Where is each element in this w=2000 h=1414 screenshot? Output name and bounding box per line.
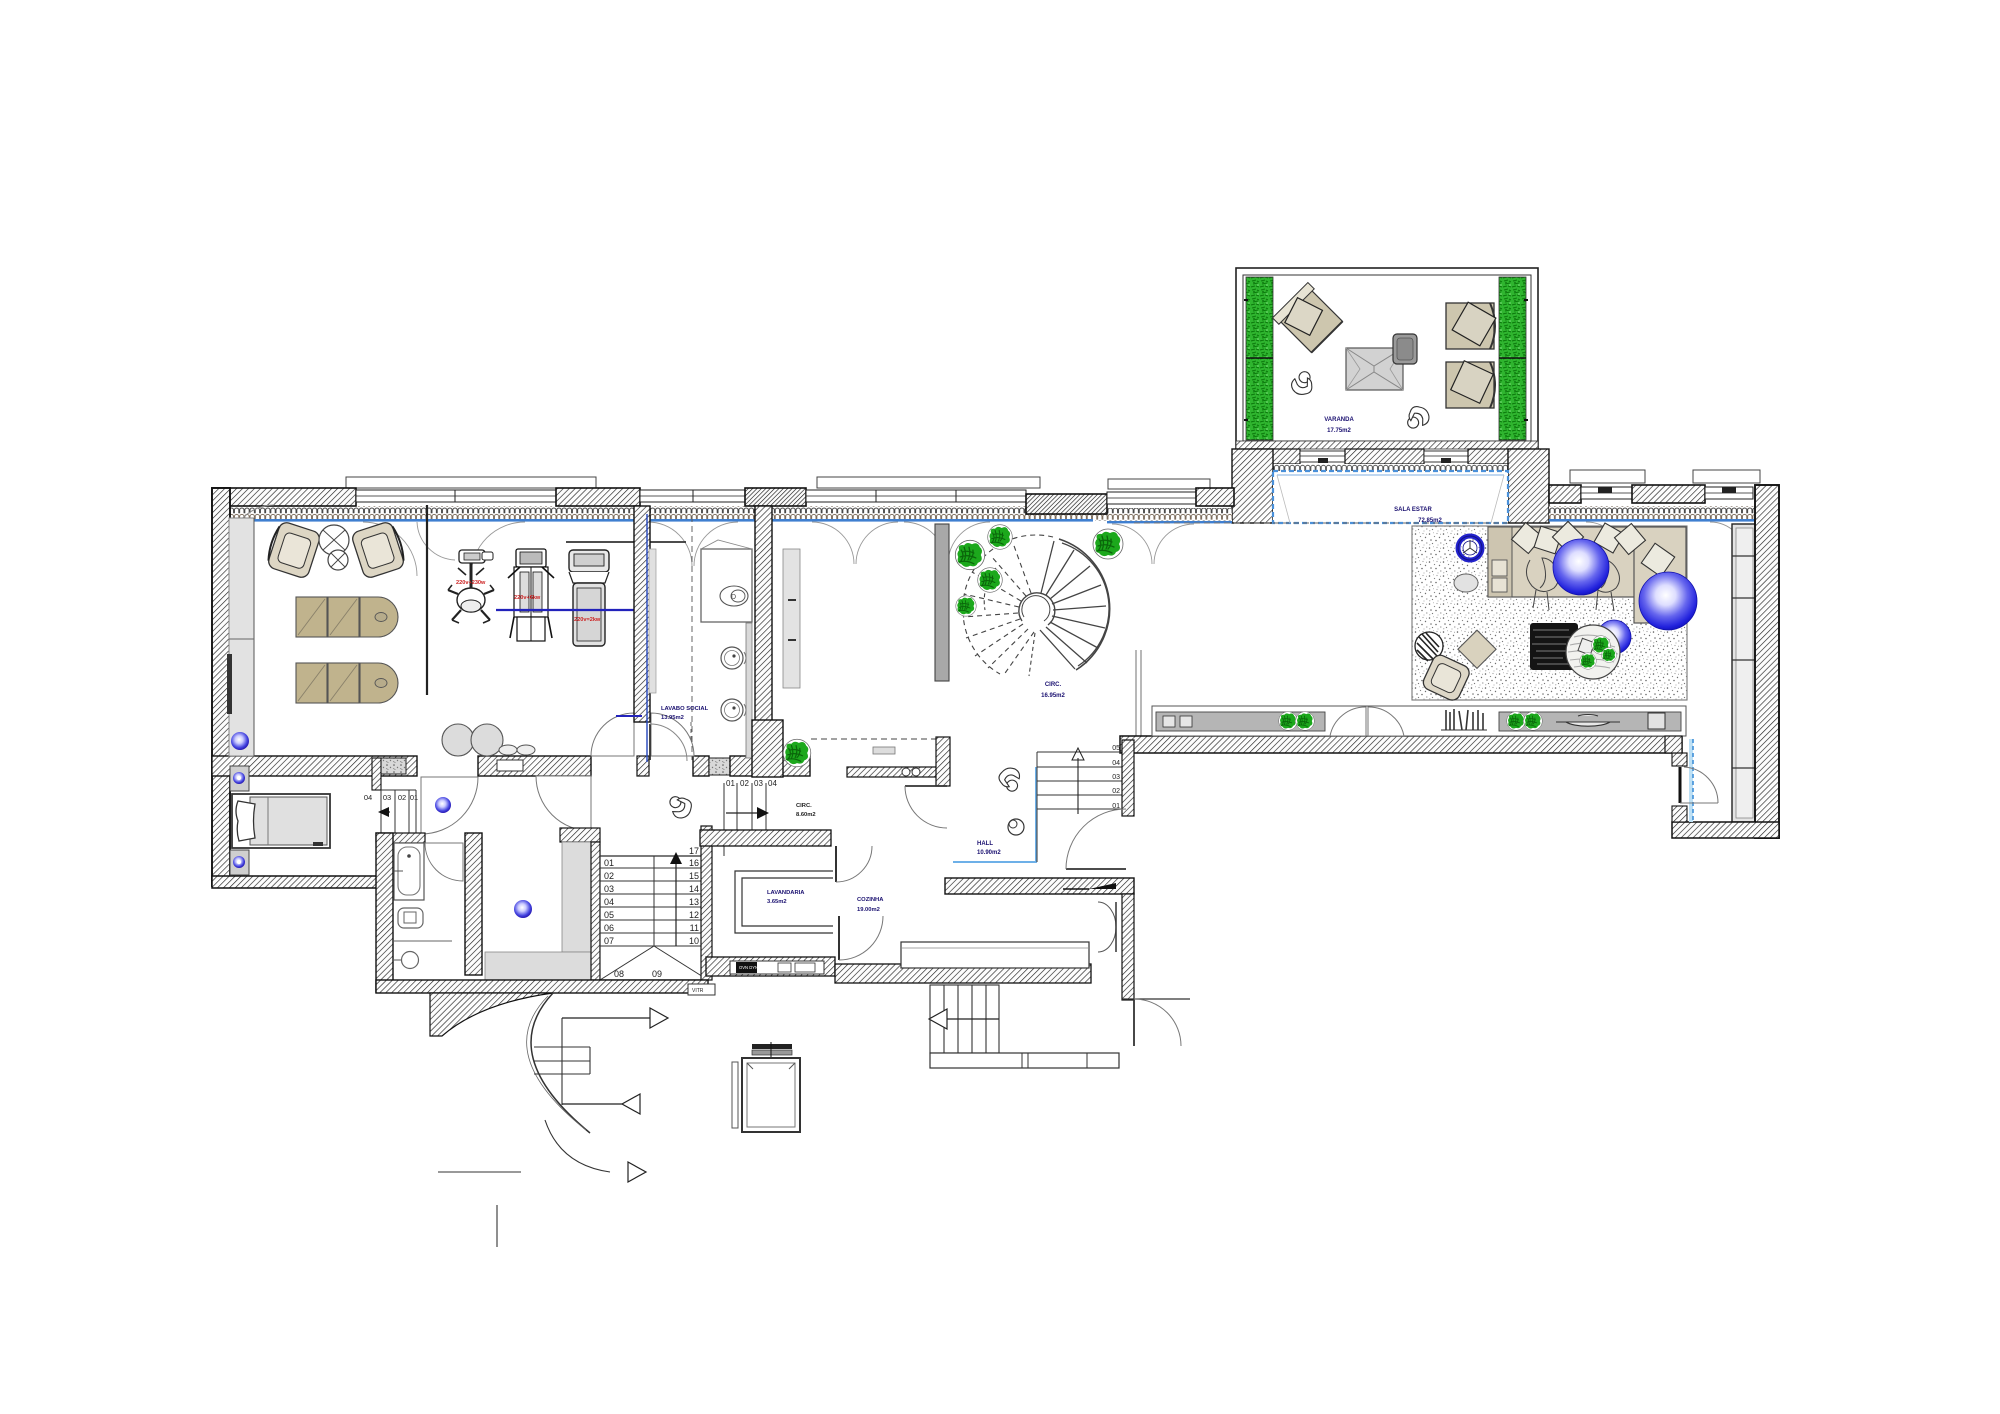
svg-text:04: 04: [1112, 760, 1120, 767]
svg-text:02: 02: [1112, 788, 1120, 795]
svg-text:16: 16: [689, 858, 699, 868]
svg-text:03: 03: [383, 793, 391, 802]
svg-text:VITR: VITR: [692, 988, 704, 994]
svg-text:01: 01: [726, 779, 735, 788]
svg-text:220v=2kw: 220v=2kw: [574, 617, 601, 623]
svg-text:13: 13: [689, 897, 699, 907]
svg-text:10: 10: [689, 936, 699, 946]
svg-text:3.65m2: 3.65m2: [767, 899, 787, 905]
svg-text:220v+230w: 220v+230w: [456, 580, 486, 586]
svg-text:OVN DYN: OVN DYN: [739, 965, 758, 970]
svg-text:220v+6kw: 220v+6kw: [514, 595, 541, 601]
svg-text:12: 12: [689, 910, 699, 920]
svg-text:11: 11: [690, 923, 699, 933]
svg-text:17.75m2: 17.75m2: [1327, 428, 1351, 434]
svg-text:COZINHA: COZINHA: [857, 897, 884, 903]
svg-text:HALL: HALL: [977, 841, 993, 847]
svg-text:08: 08: [614, 969, 624, 979]
svg-text:LAVANDARIA: LAVANDARIA: [767, 890, 805, 896]
svg-text:04: 04: [364, 793, 372, 802]
svg-text:04: 04: [604, 897, 614, 907]
svg-text:72.85m2: 72.85m2: [1418, 518, 1442, 524]
svg-text:17: 17: [689, 846, 699, 856]
svg-text:05: 05: [1112, 745, 1120, 752]
svg-text:15: 15: [689, 871, 699, 881]
svg-text:CIRC.: CIRC.: [1045, 682, 1062, 688]
svg-text:CIRC.: CIRC.: [796, 803, 812, 809]
svg-text:LAVABO SOCIAL: LAVABO SOCIAL: [661, 706, 709, 712]
svg-text:01: 01: [410, 793, 418, 802]
svg-text:06: 06: [604, 923, 614, 933]
svg-text:SALA ESTAR: SALA ESTAR: [1394, 507, 1432, 513]
svg-text:14: 14: [689, 884, 699, 894]
svg-text:02: 02: [604, 871, 614, 881]
svg-text:03: 03: [754, 779, 763, 788]
svg-text:05: 05: [604, 910, 614, 920]
svg-text:09: 09: [652, 969, 662, 979]
svg-text:13.95m2: 13.95m2: [661, 715, 684, 721]
svg-text:01: 01: [604, 858, 614, 868]
svg-text:02: 02: [740, 779, 749, 788]
svg-text:16.95m2: 16.95m2: [1041, 693, 1065, 699]
svg-text:D: D: [731, 594, 736, 601]
svg-text:07: 07: [604, 936, 614, 946]
svg-text:03: 03: [604, 884, 614, 894]
svg-text:03: 03: [1112, 774, 1120, 781]
svg-text:10.90m2: 10.90m2: [977, 850, 1001, 856]
svg-text:19.00m2: 19.00m2: [857, 907, 880, 913]
svg-text:02: 02: [398, 793, 406, 802]
svg-text:VARANDA: VARANDA: [1324, 417, 1354, 423]
svg-text:8.60m2: 8.60m2: [796, 812, 816, 818]
svg-text:04: 04: [768, 779, 777, 788]
